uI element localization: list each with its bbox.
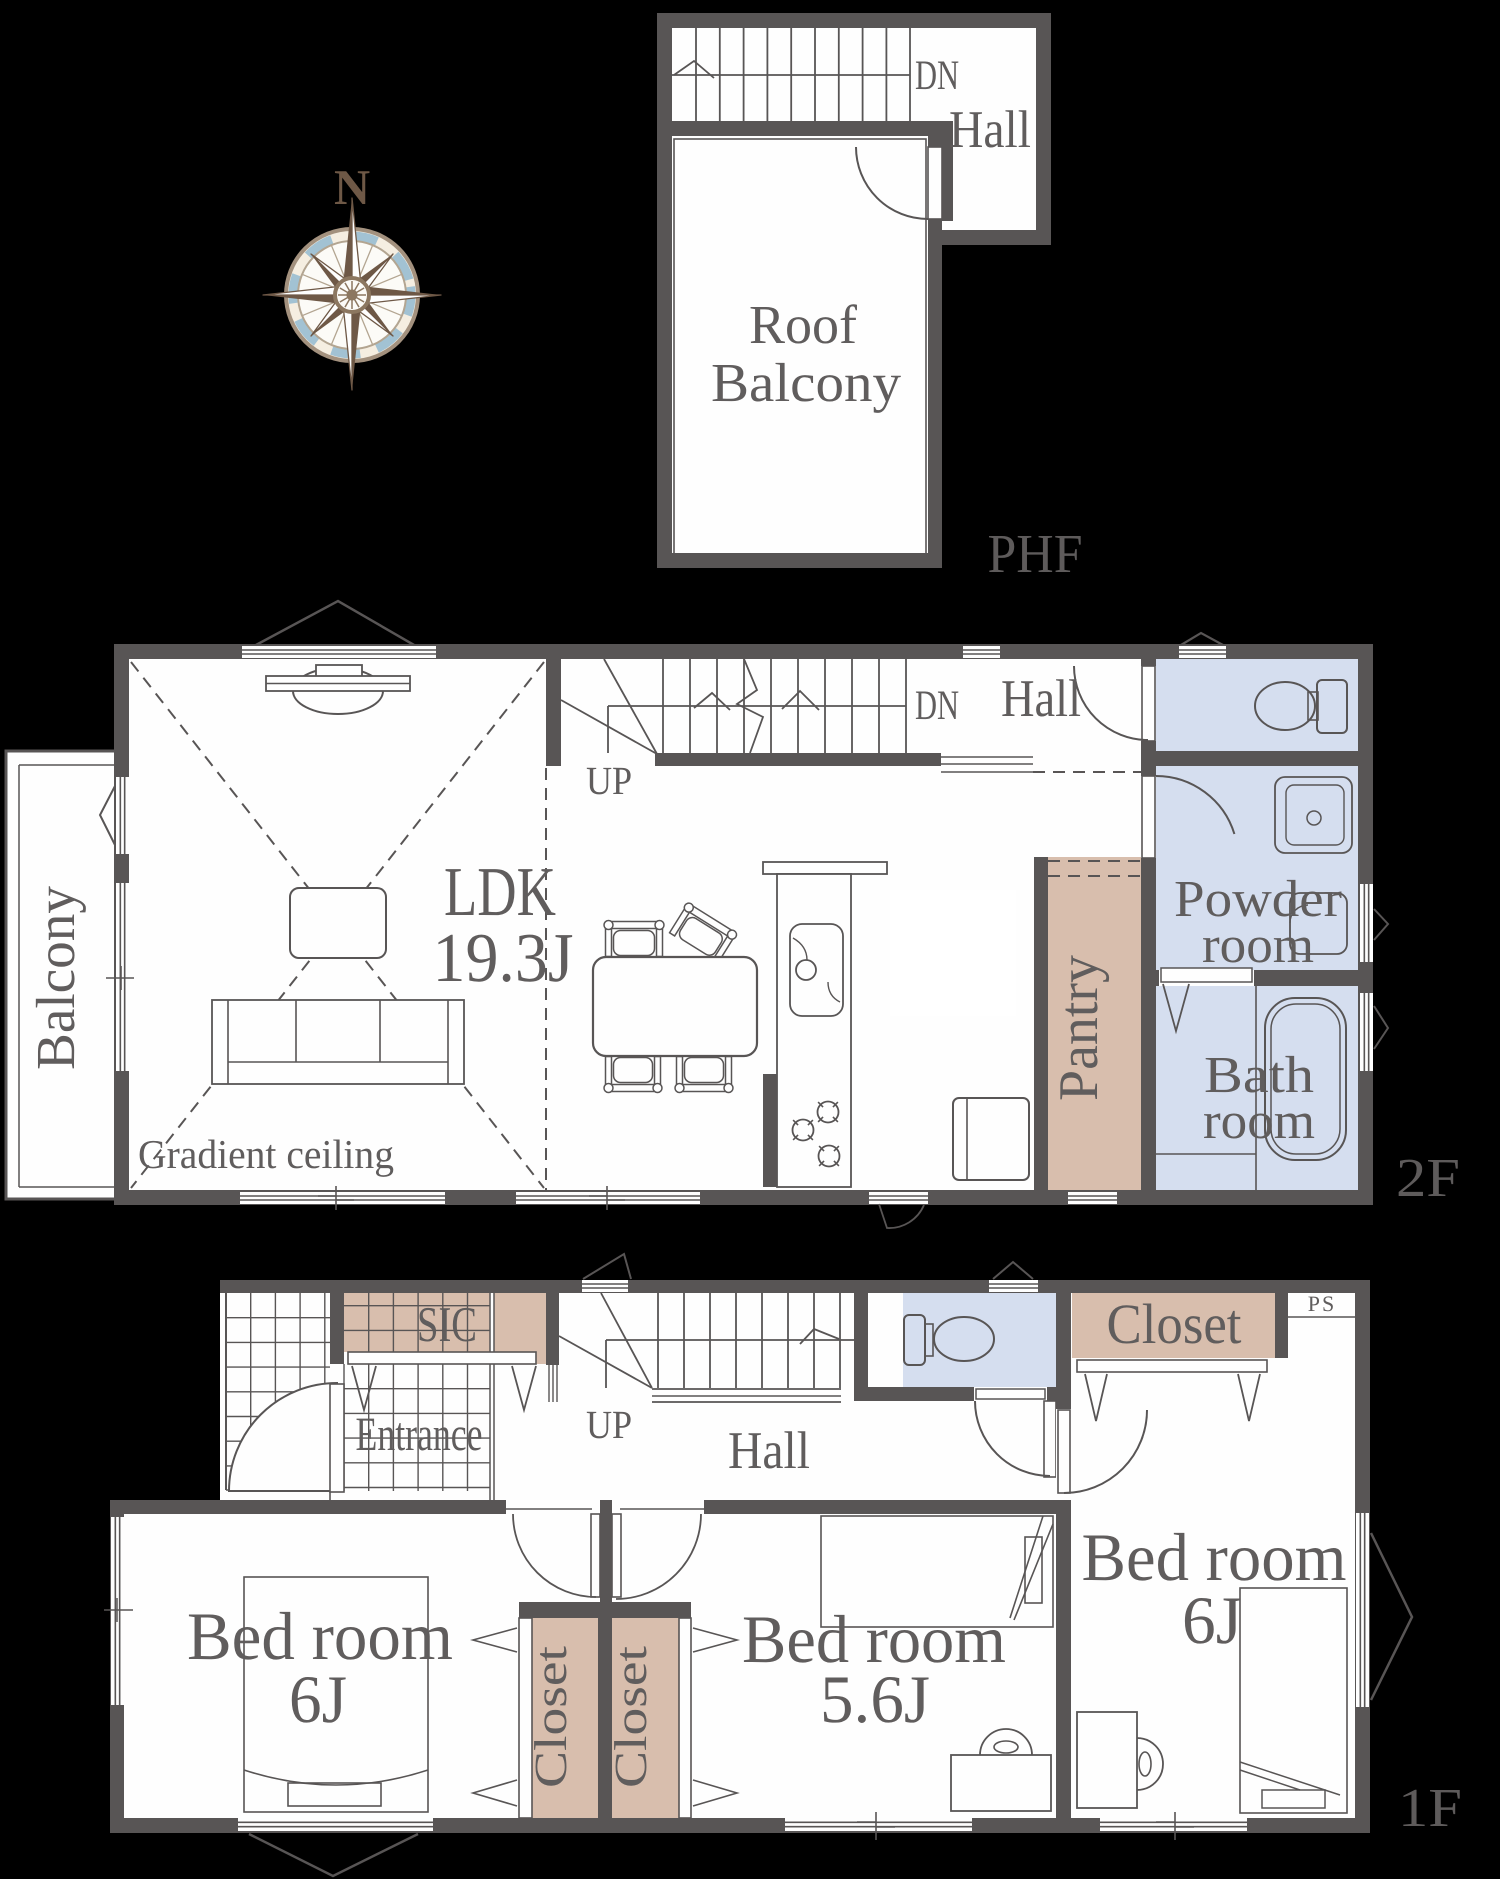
svg-text:Entrance: Entrance xyxy=(356,1408,483,1461)
svg-text:PS: PS xyxy=(1308,1291,1336,1316)
svg-text:Balcony: Balcony xyxy=(25,886,86,1070)
svg-text:Pantry: Pantry xyxy=(1048,955,1110,1101)
svg-text:2F: 2F xyxy=(1396,1147,1460,1208)
svg-text:UP: UP xyxy=(586,758,632,803)
svg-text:room: room xyxy=(1202,917,1314,974)
svg-text:Closet: Closet xyxy=(525,1646,576,1788)
svg-text:6J: 6J xyxy=(1182,1582,1242,1658)
svg-text:Balcony: Balcony xyxy=(711,352,902,413)
svg-text:UP: UP xyxy=(586,1402,632,1447)
svg-text:1F: 1F xyxy=(1398,1777,1462,1838)
svg-text:Gradient ceiling: Gradient ceiling xyxy=(138,1131,394,1177)
svg-text:N: N xyxy=(334,159,370,215)
svg-text:Hall: Hall xyxy=(728,1422,810,1480)
svg-text:room: room xyxy=(1203,1093,1315,1150)
svg-text:5.6J: 5.6J xyxy=(820,1661,930,1737)
svg-text:Hall: Hall xyxy=(1001,670,1081,728)
svg-text:19.3J: 19.3J xyxy=(433,920,574,997)
svg-text:Closet: Closet xyxy=(1107,1293,1242,1356)
svg-text:PHF: PHF xyxy=(988,523,1083,584)
svg-text:Roof: Roof xyxy=(749,294,858,355)
svg-text:6J: 6J xyxy=(289,1661,347,1737)
svg-text:Closet: Closet xyxy=(605,1646,656,1788)
svg-text:DN: DN xyxy=(915,53,959,99)
svg-text:DN: DN xyxy=(915,683,959,729)
svg-text:SIC: SIC xyxy=(417,1296,477,1352)
svg-text:Hall: Hall xyxy=(949,101,1031,159)
